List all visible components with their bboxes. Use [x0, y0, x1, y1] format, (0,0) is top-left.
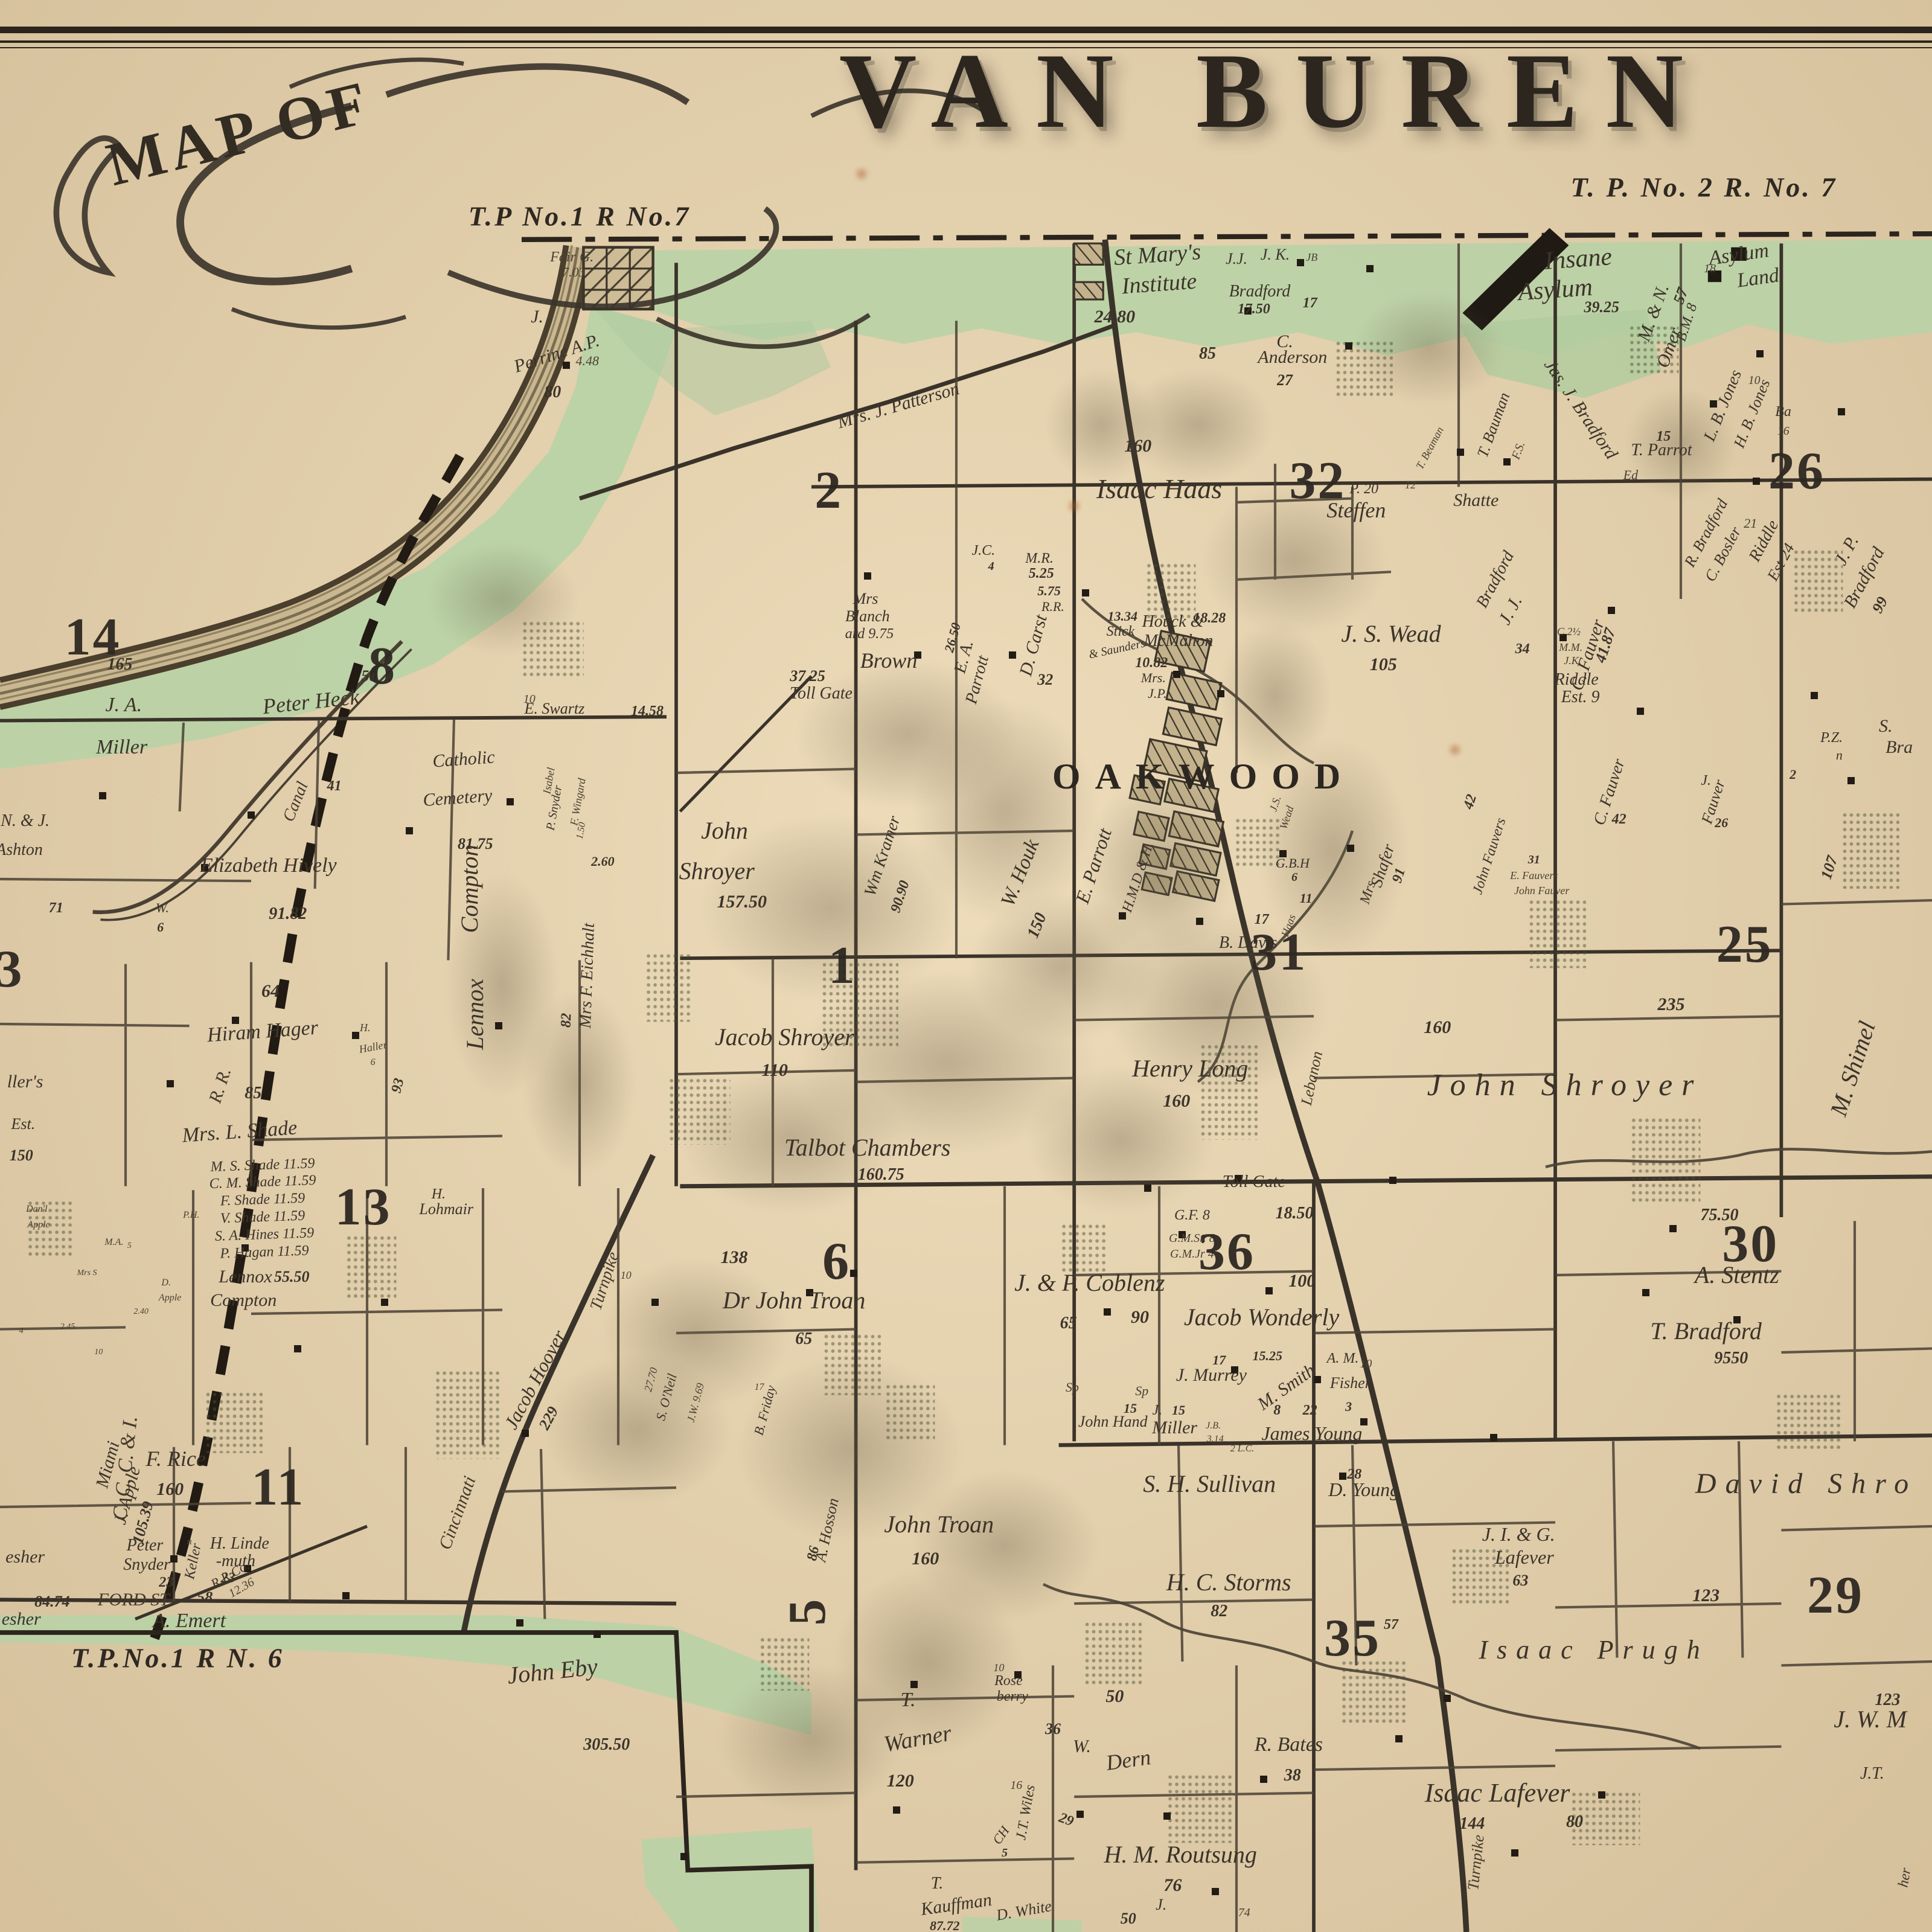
map-label: H. M. Routsung [1104, 1843, 1257, 1867]
section-number: 5 [781, 1597, 834, 1625]
orchard-symbol [1341, 1660, 1407, 1726]
map-label: 2.60 [591, 855, 615, 868]
map-label: 18.50 [1276, 1205, 1314, 1222]
map-label: Jas. J. Bradford [1540, 356, 1620, 462]
map-label: 86 [805, 1545, 822, 1562]
map-label-layer: Fair G.7.03J.Perrine A.P.4.4880Mrs. J. P… [0, 0, 1932, 1932]
building-square [1009, 651, 1016, 659]
map-label: Toll Gate [790, 685, 852, 702]
building-square [563, 362, 570, 369]
orchard-symbol [1335, 340, 1393, 398]
map-label: 80 [544, 384, 561, 401]
map-label: Cincinnati [437, 1474, 480, 1552]
map-label: Haller [358, 1039, 388, 1055]
map-label: Sp [1135, 1384, 1148, 1398]
map-label: Est. [11, 1116, 36, 1132]
map-label: 8 [1273, 1403, 1281, 1418]
building-square [1265, 1287, 1273, 1294]
map-label: 10 [621, 1270, 632, 1281]
map-label: 91.82 [269, 906, 307, 923]
map-label: F. Shade 11.59 [220, 1191, 305, 1209]
building-square [1511, 1849, 1518, 1857]
section-number: 2 [814, 464, 843, 517]
map-label: J. [1156, 1897, 1166, 1913]
map-label: Fisher [1330, 1375, 1371, 1391]
map-label: Dr John Troan [723, 1288, 865, 1313]
orchard-symbol [1061, 1223, 1107, 1273]
map-label: Turnpike [1465, 1834, 1487, 1891]
map-label: 2.40 [133, 1308, 149, 1316]
orchard-symbol [435, 1370, 501, 1459]
map-label: Mrs [853, 591, 878, 607]
map-label: C. M. Shade 11.59 [209, 1173, 316, 1191]
map-label: T. Beaman [1414, 425, 1445, 471]
map-label: 42 [1612, 812, 1627, 827]
building-square [1847, 777, 1855, 784]
orchard-symbol [1167, 1774, 1233, 1843]
orchard-symbol [668, 1077, 730, 1145]
map-label: P. 20 [1349, 482, 1378, 496]
map-label: 6 [157, 921, 164, 934]
map-label: D. Young [1328, 1480, 1399, 1499]
building-square [1608, 607, 1615, 614]
map-label: Ed [1623, 469, 1638, 482]
map-label: A. Emert [153, 1611, 226, 1631]
map-label: 18.28 [1193, 611, 1226, 625]
map-label: Insane [1544, 244, 1613, 274]
map-label: P. Hagan 11.59 [220, 1243, 309, 1261]
map-label: 23 [221, 1571, 235, 1585]
map-label: H. [432, 1187, 446, 1201]
map-label: 160 [1424, 1019, 1451, 1037]
terrain-hachure [715, 1662, 908, 1816]
map-label: 82 [558, 1012, 574, 1028]
terrain-hachure [1217, 618, 1333, 773]
map-label: 16 [1010, 1779, 1022, 1791]
building-square [167, 1080, 174, 1087]
map-label: 32 [1037, 672, 1053, 688]
map-label: 34 [1515, 642, 1530, 656]
map-label: 84.74 [34, 1594, 70, 1610]
building-square [1260, 1776, 1267, 1783]
map-label: John Hand [1078, 1414, 1148, 1430]
building-square [170, 1555, 178, 1563]
orchard-symbol [522, 620, 583, 678]
map-label: J. [531, 308, 543, 326]
building-square [1642, 1289, 1649, 1296]
map-label: Lafever [1495, 1547, 1554, 1567]
map-label: Lennox [463, 979, 487, 1050]
map-label: J. S. Wead [1341, 622, 1441, 646]
map-label: 5 [1002, 1847, 1008, 1859]
section-number: 14 [65, 611, 121, 664]
orchard-symbol [1146, 562, 1196, 620]
map-label: 3 [1345, 1400, 1352, 1413]
map-label: 5 [127, 1242, 132, 1250]
map-label: J.T. [1860, 1765, 1884, 1782]
map-label: D. [161, 1278, 171, 1288]
map-label: 17 [755, 1383, 764, 1392]
terrain-hachure [1024, 1063, 1217, 1217]
map-label: J. K. [1261, 247, 1290, 263]
map-label: Est. 9 [1561, 689, 1600, 706]
map-label: T. [931, 1875, 944, 1892]
building-square [406, 827, 413, 834]
map-label: 58 [197, 1590, 213, 1605]
map-label: Miller [1152, 1419, 1197, 1437]
map-label: 10.82 [1135, 656, 1168, 670]
map-label: 11 [1300, 892, 1313, 905]
section-number: 3 [0, 943, 24, 996]
building-square [1669, 1225, 1677, 1232]
map-label: 107 [1818, 854, 1841, 881]
building-square [864, 572, 871, 580]
map-label: Brown [860, 650, 918, 671]
orchard-symbol [1841, 811, 1899, 889]
building-square [593, 1631, 601, 1638]
map-label: Peter [127, 1537, 164, 1554]
map-label: P.Z. [1820, 731, 1843, 745]
map-label: A. M. [1327, 1351, 1359, 1366]
section-number: 36 [1198, 1226, 1255, 1279]
building-square [910, 1681, 918, 1688]
map-label: John Fauvers [1470, 816, 1508, 895]
building-square [893, 1806, 900, 1814]
building-square [522, 1430, 529, 1437]
map-label: F.S. [1510, 440, 1527, 461]
section-number: 32 [1289, 455, 1346, 508]
map-label: Miller [96, 737, 147, 758]
map-label: James Young [1261, 1424, 1362, 1443]
building-square [850, 1270, 857, 1277]
map-label: J.J. [1226, 251, 1247, 267]
map-label: Stick [1107, 624, 1135, 639]
map-label: J. [1152, 1403, 1162, 1418]
map-label: 37.25 [790, 668, 825, 684]
map-label: Blanch [845, 609, 890, 624]
paper-foxing-spot [1066, 499, 1083, 513]
map-label: R. Bates [1255, 1735, 1323, 1755]
section-number: 26 [1768, 445, 1825, 498]
map-label: 55.50 [274, 1269, 310, 1285]
map-label: 15 [1172, 1404, 1185, 1417]
map-label: CH [990, 1824, 1012, 1847]
map-label: G.F. 8 [1174, 1208, 1210, 1223]
map-label: 18 [1704, 263, 1716, 275]
building-square [99, 792, 106, 799]
map-label: Shatte [1453, 491, 1499, 510]
map-label: M.M. [1559, 642, 1582, 653]
map-label: 76 [1163, 1876, 1182, 1895]
map-label: 38 [1284, 1767, 1301, 1784]
orchard-symbol [346, 1235, 396, 1300]
map-label: 138 [721, 1249, 748, 1267]
terrain-hachure [1043, 367, 1159, 483]
map-label: D. Carst [1017, 613, 1051, 678]
map-label: Bra [1886, 738, 1913, 756]
map-label: Mrs F. Eichhalt [577, 923, 598, 1028]
map-label: H. Linde [210, 1535, 269, 1552]
map-label: Elizabeth Hively [200, 856, 337, 876]
building-square [1753, 478, 1760, 485]
map-label: J.T. Wiles [1014, 1783, 1038, 1841]
map-label: R. R. [206, 1066, 234, 1106]
section-number: 30 [1722, 1218, 1779, 1271]
map-label: J. W. M [1834, 1707, 1907, 1732]
map-label: J.K. [1564, 655, 1581, 666]
map-label: N. & J. [1, 813, 50, 830]
orchard-symbol [205, 1391, 263, 1453]
map-label: John Shroyer [1427, 1070, 1703, 1101]
map-label: ard 9.75 [845, 627, 894, 641]
map-label: Institute [1121, 270, 1198, 298]
map-label: 85 [1199, 345, 1216, 362]
map-label: J. I. & G. [1482, 1524, 1555, 1544]
map-label: C 2½ [1557, 626, 1581, 637]
map-label: Kauffman [920, 1891, 993, 1919]
section-number: 35 [1324, 1612, 1381, 1665]
map-label: Compton [458, 845, 482, 933]
map-label: 5.25 [1029, 566, 1054, 581]
map-label: Jacob Shroyer [715, 1025, 854, 1049]
building-square [1395, 1735, 1403, 1742]
section-number: 8 [368, 640, 397, 693]
map-label: W. [1073, 1738, 1091, 1756]
building-square [1366, 265, 1374, 272]
map-label: S. H. Sullivan [1143, 1472, 1276, 1496]
map-label: Compton [210, 1291, 277, 1310]
building-square [381, 1299, 388, 1306]
map-label: 14.58 [631, 704, 664, 718]
map-label: 16 [1777, 425, 1790, 437]
map-label: Peter Heck [261, 685, 360, 717]
map-label: Fair G. [550, 250, 593, 264]
map-label: 39.25 [1584, 299, 1620, 315]
map-label: S. [1879, 717, 1893, 735]
map-label: Mrs. [1141, 671, 1166, 685]
section-number: 13 [335, 1181, 392, 1234]
terrain-hachure [1082, 773, 1236, 966]
map-label: 50 [1121, 1911, 1136, 1927]
map-label: 4 [988, 560, 994, 572]
section-number: 25 [1716, 918, 1773, 971]
building-square [294, 1345, 301, 1352]
map-label: Catholic [432, 748, 495, 770]
building-square [1082, 589, 1089, 597]
map-label: 1.50 [575, 822, 588, 840]
map-label: 99 [1869, 594, 1890, 615]
building-square [248, 811, 255, 819]
map-label: 160 [1163, 1092, 1190, 1110]
map-label: 4.48 [576, 354, 600, 368]
map-label: David Shro [1695, 1470, 1918, 1499]
orchard-symbol [760, 1636, 810, 1690]
building-square [1637, 708, 1644, 715]
building-square [1196, 918, 1203, 925]
map-label: E. Fauvers [1510, 870, 1558, 881]
map-label: 71 [49, 901, 63, 915]
building-square [1297, 259, 1304, 266]
orchard-symbol [1631, 1117, 1700, 1202]
map-label: 10 [1748, 374, 1761, 386]
building-square [1598, 1791, 1605, 1799]
building-square [1811, 692, 1818, 699]
map-label: 85 [245, 1085, 261, 1102]
section-number: 31 [1250, 926, 1307, 979]
map-label: Isaac Lafever [1425, 1780, 1570, 1806]
map-label: 17.50 [1238, 302, 1270, 316]
building-square [1756, 350, 1764, 357]
orchard-symbol [1776, 1393, 1841, 1451]
map-label: Canal [280, 779, 312, 824]
map-label: H. [360, 1022, 371, 1033]
building-square [1389, 1177, 1396, 1184]
map-label: Isaac Prugh [1479, 1637, 1709, 1663]
map-label: R.R. [1041, 600, 1064, 613]
orchard-symbol [823, 1333, 881, 1395]
building-square [1345, 342, 1352, 350]
map-label: 64 [261, 982, 280, 1000]
map-label: 5.75 [1037, 584, 1061, 598]
map-label: John Fauver [1514, 885, 1569, 896]
map-label: Cemetery [423, 787, 493, 810]
map-label: J.B. [1206, 1421, 1221, 1431]
terrain-hachure [541, 1352, 734, 1507]
building-square [1444, 1695, 1451, 1702]
map-label: T. Bradford [1650, 1319, 1761, 1343]
orchard-symbol [1084, 1621, 1142, 1687]
map-label: Asylum [1517, 275, 1593, 305]
map-label: Toll Gate [1223, 1174, 1285, 1191]
map-label: J. J. [1496, 593, 1526, 627]
map-label: J. Murrey [1176, 1366, 1247, 1384]
map-label: 31 [1528, 854, 1540, 866]
map-label: Rose [994, 1674, 1023, 1688]
map-label: 160 [1124, 437, 1151, 455]
map-label: G.B.H [1276, 857, 1310, 870]
map-label: 27 [1277, 373, 1293, 388]
map-label: Hiram Hager [206, 1017, 319, 1046]
map-label: 24.80 [1095, 308, 1136, 326]
map-label: 74 [1238, 1907, 1250, 1919]
map-label: 41 [327, 779, 342, 793]
map-label: 150 [10, 1148, 33, 1163]
map-label: Lohmair [419, 1201, 473, 1217]
map-label: 93 [389, 1077, 407, 1095]
section-number: 11 [251, 1461, 305, 1514]
map-label: Sp [1066, 1381, 1079, 1394]
building-square [1173, 671, 1180, 678]
map-label: 10 [1360, 1358, 1372, 1370]
building-square [1347, 845, 1354, 852]
building-square [1457, 449, 1464, 456]
map-label: Bradford [1229, 283, 1291, 300]
section-number: 1 [828, 939, 857, 993]
building-square [1217, 690, 1224, 697]
map-label: 65 [1060, 1315, 1077, 1332]
map-label: M. S. Shade 11.59 [210, 1156, 315, 1174]
map-label: Jacob Wonderly [1184, 1305, 1339, 1329]
orchard-symbol [885, 1383, 935, 1441]
map-label: J.P. [1148, 687, 1166, 700]
map-label: Apple [27, 1220, 50, 1230]
map-label: Isaac Haas [1096, 475, 1222, 503]
map-label: Dan'l [26, 1204, 47, 1214]
map-label: 123 [1692, 1587, 1719, 1605]
atlas-map-sheet: MAP OF VAN BUREN T.P No.1 R No.7 T. P. N… [0, 0, 1932, 1932]
map-label: 82 [1211, 1603, 1227, 1620]
map-label: 2.45 [60, 1323, 75, 1331]
map-label: 110 [762, 1061, 788, 1080]
map-label: F. Rice [146, 1448, 206, 1470]
map-label: T. [901, 1690, 916, 1710]
building-square [680, 1853, 688, 1860]
map-label: esher [5, 1548, 45, 1566]
building-square [651, 1299, 659, 1306]
building-square [1490, 1434, 1497, 1441]
orchard-symbol [1528, 898, 1586, 968]
map-label: Ba [1775, 405, 1791, 419]
map-label: H. C. Storms [1166, 1570, 1291, 1595]
map-label: Mrs. J. Patterson [836, 380, 962, 432]
map-label: 50 [1105, 1687, 1124, 1706]
building-square [342, 1592, 350, 1599]
building-square [1838, 408, 1845, 415]
map-label: W. [156, 901, 169, 915]
orchard-symbol [1235, 817, 1281, 868]
map-label: esher [2, 1610, 41, 1628]
building-square [1503, 458, 1511, 465]
map-label: ller's [7, 1073, 43, 1091]
map-label: P.H. [183, 1211, 199, 1220]
map-label: J. A. [105, 695, 142, 715]
building-square [1163, 1812, 1171, 1820]
map-label: 23 [159, 1575, 173, 1590]
map-label: 120 [887, 1772, 914, 1790]
building-square [1119, 912, 1126, 920]
map-label: n [1836, 749, 1843, 762]
building-square [1104, 1308, 1111, 1316]
map-label: M.R. [1025, 551, 1054, 566]
map-label: Keller [182, 1542, 204, 1581]
map-label: 80 [1566, 1814, 1583, 1831]
map-label: 57 [1384, 1617, 1398, 1632]
building-square [1212, 1888, 1219, 1895]
map-label: 9550 [1714, 1350, 1748, 1367]
map-label: Riddle [1555, 671, 1599, 688]
map-label: 29 [1057, 1811, 1076, 1829]
map-label: 2 [1790, 768, 1796, 781]
map-label: 15 [1656, 429, 1671, 444]
map-label: 65 [795, 1331, 812, 1348]
paper-foxing-spot [1447, 743, 1463, 756]
map-label: 160.75 [858, 1166, 904, 1183]
map-label: Shroyer [679, 859, 755, 883]
map-label: 87.72 [930, 1919, 960, 1932]
map-label: 235 [1658, 996, 1685, 1014]
map-label: 22 [1303, 1403, 1317, 1418]
building-square [495, 1022, 502, 1029]
map-label: 2 L.C. [1230, 1444, 1255, 1454]
map-label: 7.03 [562, 266, 586, 279]
section-number: 6 [822, 1235, 851, 1288]
map-label: Lennox [219, 1268, 272, 1286]
map-label: 90 [1131, 1308, 1149, 1326]
map-label: 63 [1512, 1573, 1528, 1588]
building-square [1076, 1811, 1084, 1818]
map-label: Snyder [123, 1556, 170, 1573]
map-label: 6 [1291, 871, 1297, 883]
